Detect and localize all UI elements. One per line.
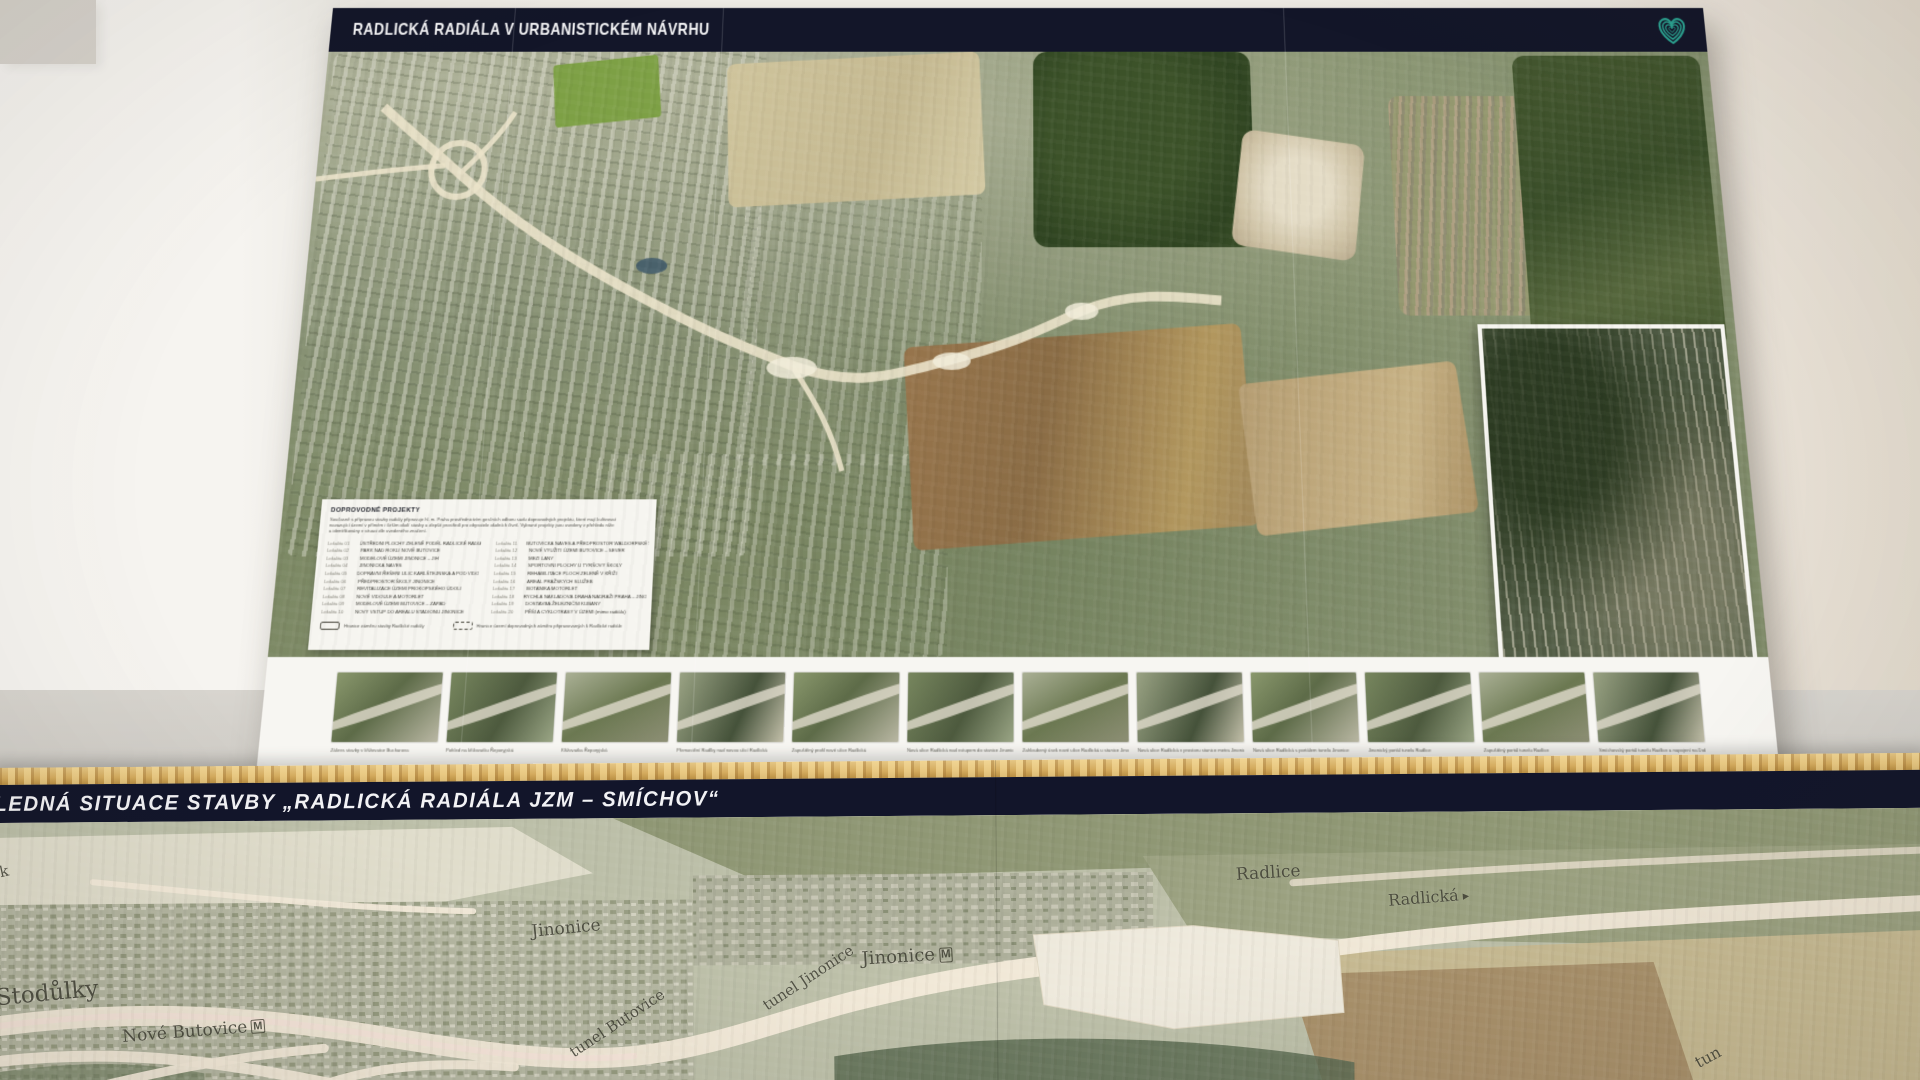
thumbnail-caption: Zapuštěný portál tunelu Radlice bbox=[1484, 747, 1591, 753]
thumbnail: Křižovatka Řeporyjská bbox=[561, 672, 671, 753]
map-label-tun: tun bbox=[1691, 1042, 1724, 1072]
legend-item-label: SPORTOVNÍ PLOCHY U TYRŠOVY ŠKOLY bbox=[528, 563, 622, 569]
legend-item: Lokalita 06PŘEDPROSTOR ŠKOLY JINONICE bbox=[324, 578, 478, 584]
legend-item-code: Lokalita 11 bbox=[496, 540, 521, 546]
photo-of-exhibition-panels: RADLICKÁ RADIÁLA V URBANISTICKÉM NÁVRHU bbox=[0, 0, 1920, 1080]
legend-item: Lokalita 15REHABILITACE PLOCH ZELENĚ V K… bbox=[494, 570, 648, 576]
legend-item-label: PŘEDPROSTOR ŠKOLY JINONICE bbox=[358, 578, 435, 584]
legend-item-code: Lokalita 19 bbox=[491, 601, 520, 607]
legend-item: Lokalita 19DOSTAVBA ŽELEZNIČNÍ KUBÁNY bbox=[491, 601, 646, 607]
top-poster-title: RADLICKÁ RADIÁLA V URBANISTICKÉM NÁVRHU bbox=[352, 20, 710, 40]
legend-item-code: Lokalita 17 bbox=[493, 586, 522, 592]
metro-station-icon: M bbox=[939, 947, 954, 963]
aerial-panorama-route-map: jkStodůlkyNové ButoviceMJinonicetunel Bu… bbox=[0, 808, 1920, 1080]
legend-item-code: Lokalita 03 bbox=[326, 555, 355, 561]
legend-item: Lokalita 05DOPRAVNÍ ŘEŠENÍ ULIC KARLŠTEJ… bbox=[325, 570, 479, 576]
striped-heart-logo-icon bbox=[1654, 15, 1691, 47]
thumbnail-visualization-image bbox=[1479, 672, 1590, 742]
map-label-jinonice: JinoniceM bbox=[861, 943, 953, 969]
thumbnail: Zahloubený úsek nové ulice Radlická u st… bbox=[1022, 672, 1129, 753]
thumbnail-visualization-image bbox=[1251, 672, 1359, 742]
top-poster-title-bar: RADLICKÁ RADIÁLA V URBANISTICKÉM NÁVRHU bbox=[329, 8, 1708, 52]
legend-item-label: BUTOVICKÁ NÁVES A PŘEDPROSTOR WALDORFSKÉ… bbox=[526, 540, 649, 546]
legend-item-code: Lokalita 18 bbox=[492, 593, 518, 599]
map-label-radlick-: Radlická▸ bbox=[1387, 885, 1469, 910]
legend-item-code: Lokalita 12 bbox=[495, 548, 523, 554]
legend-item: Lokalita 13MEZI LÁNY bbox=[495, 555, 649, 561]
top-poster-urban-design-map: RADLICKÁ RADIÁLA V URBANISTICKÉM NÁVRHU bbox=[251, 8, 1785, 827]
legend-item-label: DOSTAVBA ŽELEZNIČNÍ KUBÁNY bbox=[525, 601, 601, 607]
legend-intro-line: a identifikovány v situaci dle uvedeného… bbox=[329, 528, 646, 534]
thumbnail-visualization-image bbox=[1593, 672, 1705, 742]
legend-item: Lokalita 12NOVÉ VYUŽITÍ ÚZEMÍ BUTOVICE –… bbox=[495, 548, 649, 554]
legend-item: Lokalita 02PARK NAD ROKLÍ NOVÉ BUTOVICE bbox=[327, 548, 481, 554]
legend-item-label: JINONICKÁ NÁVES bbox=[359, 563, 402, 569]
aerial-map-urban-design: DOPROVODNÉ PROJEKTY Současně s přípravou… bbox=[268, 52, 1768, 657]
legend-item: Lokalita 20PĚŠÍ A CYKLOTRASY V ÚZEMÍ (mi… bbox=[491, 609, 646, 615]
legend-item-code: Lokalita 15 bbox=[494, 570, 523, 576]
legend-item: Lokalita 08NOVÉ VIDOULE A MOTORLET bbox=[323, 593, 478, 599]
legend-item: Lokalita 14SPORTOVNÍ PLOCHY U TYRŠOVY ŠK… bbox=[494, 563, 648, 569]
legend-item-label: PĚŠÍ A CYKLOTRASY V ÚZEMÍ (mimo radiálu) bbox=[525, 609, 626, 615]
legend-heading: DOPROVODNÉ PROJEKTY bbox=[330, 507, 646, 514]
thumbnail-caption: Zapuštěný profil nové ulice Radlická bbox=[792, 747, 899, 753]
legend-item-code: Lokalita 07 bbox=[323, 586, 352, 592]
thumbnail-caption: Pohled na křižovatku Řeporyjská bbox=[446, 747, 553, 753]
thumbnail: Nová ulice Radlická v prostoru stanice m… bbox=[1137, 672, 1245, 753]
thumbnail-caption: Smíchovský portál tunelu Radlice a napoj… bbox=[1599, 747, 1706, 753]
legend-item: Lokalita 01ÚSTŘEDNÍ PLOCHY ZELENĚ PODÉL … bbox=[328, 540, 482, 546]
thumbnail-visualization-image bbox=[562, 672, 672, 742]
map-label-tunel-butovice: tunel Butovice bbox=[566, 985, 668, 1061]
legend-footer-keys: Hranice záměru stavby Radlické radiályHr… bbox=[320, 621, 641, 629]
legend-item: Lokalita 11BUTOVICKÁ NÁVES A PŘEDPROSTOR… bbox=[496, 540, 649, 546]
legend-item-label: ÚSTŘEDNÍ PLOCHY ZELENĚ PODÉL RADLICKÉ RA… bbox=[359, 540, 481, 546]
thumbnail-row: Zákres stavby v křižovatce BucharovaPohl… bbox=[330, 672, 1705, 753]
legend-intro: Současně s přípravou stavby radiály přip… bbox=[329, 516, 647, 534]
legend-column-right: Lokalita 11BUTOVICKÁ NÁVES A PŘEDPROSTOR… bbox=[491, 540, 650, 616]
legend-item: Lokalita 17BOTANIKA MOTORLET bbox=[493, 586, 647, 592]
map-labels-layer: jkStodůlkyNové ButoviceMJinonicetunel Bu… bbox=[0, 808, 1920, 1080]
direction-arrow-icon: ▸ bbox=[1462, 888, 1470, 903]
legend-item-label: REVITALIZACE ÚZEMÍ PROKOPSKÉHO ÚDOLÍ bbox=[357, 586, 461, 592]
legend-item-code: Lokalita 20 bbox=[491, 609, 520, 615]
thumbnail: Jinonický portál tunelu Radlice bbox=[1365, 672, 1475, 753]
map-label-jk: jk bbox=[0, 862, 10, 883]
legend-item-label: REHABILITACE PLOCH ZELENĚ V KŘÍŽI bbox=[527, 570, 617, 576]
legend-key: Hranice území doprovodných záměrů připra… bbox=[452, 621, 622, 629]
thumbnail: Zákres stavby v křižovatce Bucharova bbox=[330, 672, 443, 753]
inset-detail-map bbox=[1477, 324, 1757, 657]
map-label-nov-butovice: Nové ButoviceM bbox=[122, 1016, 266, 1047]
legend-item-label: NOVÝ VSTUP DO AREÁLU STADIONU JINONICE bbox=[355, 609, 464, 615]
legend-item-code: Lokalita 02 bbox=[327, 548, 356, 554]
thumbnail: Nová ulice Radlická s portálem tunelu Ji… bbox=[1251, 672, 1360, 753]
legend-item-label: NOVÉ VIDOULE A MOTORLET bbox=[356, 593, 424, 599]
legend-item: Lokalita 18RYCHLÁ NÁKLADOVÁ DRÁHA NÁDRAŽ… bbox=[492, 593, 647, 599]
legend-item-label: NOVÉ VYUŽITÍ ÚZEMÍ BUTOVICE – SEVER bbox=[529, 548, 625, 554]
legend-item-code: Lokalita 04 bbox=[325, 563, 354, 569]
thumbnail-caption: Přemostění Radlky nad novou ulicí Radlic… bbox=[676, 747, 783, 753]
legend-item: Lokalita 07REVITALIZACE ÚZEMÍ PROKOPSKÉH… bbox=[323, 586, 478, 592]
solid-outline-box bbox=[320, 621, 340, 629]
thumbnail-caption: Nová ulice Radlická s portálem tunelu Ji… bbox=[1253, 747, 1360, 753]
thumbnail-visualization-image bbox=[1022, 672, 1128, 742]
thumbnail-visualization-image bbox=[792, 672, 899, 742]
metro-station-icon: M bbox=[251, 1019, 265, 1034]
legend-item-label: MODELOVÉ ÚZEMÍ JINONICE – JIH bbox=[360, 555, 439, 561]
legend-item-code: Lokalita 14 bbox=[494, 563, 523, 569]
legend-item-code: Lokalita 01 bbox=[328, 540, 355, 546]
legend-item-code: Lokalita 05 bbox=[325, 570, 352, 576]
thumbnail-caption: Zákres stavby v křižovatce Bucharova bbox=[330, 747, 437, 753]
legend-item-code: Lokalita 09 bbox=[322, 601, 351, 607]
legend-item-label: BOTANIKA MOTORLET bbox=[526, 586, 578, 592]
map-label-radlice: Radlice bbox=[1235, 861, 1301, 885]
legend-item-code: Lokalita 10 bbox=[321, 609, 350, 615]
thumbnail-caption: Jinonický portál tunelu Radlice bbox=[1368, 747, 1475, 753]
thumbnail-caption: Nová ulice Radlická nad vstupem do stani… bbox=[907, 747, 1013, 753]
thumbnail: Nová ulice Radlická nad vstupem do stani… bbox=[907, 672, 1014, 753]
thumbnail: Zapuštěný profil nové ulice Radlická bbox=[792, 672, 900, 753]
bottom-poster-title: LEDNÁ SITUACE STAVBY „RADLICKÁ RADIÁLA J… bbox=[0, 787, 720, 817]
legend-item-code: Lokalita 08 bbox=[323, 593, 352, 599]
legend-item-code: Lokalita 16 bbox=[493, 578, 522, 584]
thumbnail-visualization-image bbox=[1365, 672, 1475, 742]
thumbnail-visualization-image bbox=[1137, 672, 1244, 742]
legend-item-code: Lokalita 13 bbox=[495, 555, 523, 561]
bottom-poster-construction-situation: LEDNÁ SITUACE STAVBY „RADLICKÁ RADIÁLA J… bbox=[0, 753, 1920, 1080]
thumbnail-caption: Zahloubený úsek nové ulice Radlická u st… bbox=[1022, 747, 1128, 753]
thumbnail-visualization-image bbox=[907, 672, 1013, 742]
thumbnail: Smíchovský portál tunelu Radlice a napoj… bbox=[1593, 672, 1706, 753]
legend-item-label: MEZI LÁNY bbox=[528, 555, 553, 561]
legend-key-label: Hranice záměru stavby Radlické radiály bbox=[344, 622, 425, 628]
thumbnail-caption: Nová ulice Radlická v prostoru stanice m… bbox=[1138, 747, 1245, 753]
legend-item-label: DOPRAVNÍ ŘEŠENÍ ULIC KARLŠTEJNSKÁ A POD … bbox=[357, 570, 479, 576]
legend-box: DOPROVODNÉ PROJEKTY Současně s přípravou… bbox=[308, 499, 657, 650]
thumbnail-caption: Křižovatka Řeporyjská bbox=[561, 747, 668, 753]
railway-texture bbox=[1482, 329, 1753, 657]
map-label-stod-lky: Stodůlky bbox=[0, 976, 99, 1012]
legend-item: Lokalita 04JINONICKÁ NÁVES bbox=[325, 563, 479, 569]
legend-column-left: Lokalita 01ÚSTŘEDNÍ PLOCHY ZELENĚ PODÉL … bbox=[321, 540, 481, 616]
thumbnail-visualization-image bbox=[331, 672, 443, 742]
wall-corner-shadow bbox=[0, 0, 96, 64]
legend-item-code: Lokalita 06 bbox=[324, 578, 353, 584]
legend-item-label: PARK NAD ROKLÍ NOVÉ BUTOVICE bbox=[360, 548, 440, 554]
legend-item: Lokalita 09MODELOVÉ ÚZEMÍ BUTOVICE – ZÁP… bbox=[322, 601, 477, 607]
legend-key-label: Hranice území doprovodných záměrů připra… bbox=[476, 622, 622, 628]
map-label-tunel-jinonice: tunel Jinonice bbox=[759, 941, 857, 1014]
legend-item: Lokalita 10NOVÝ VSTUP DO AREÁLU STADIONU… bbox=[321, 609, 476, 615]
thumbnail: Zapuštěný portál tunelu Radlice bbox=[1479, 672, 1590, 753]
legend-key: Hranice záměru stavby Radlické radiály bbox=[320, 621, 425, 629]
legend-item-label: AREÁL PRAŽSKÝCH SLUŽEB bbox=[527, 578, 593, 584]
legend-item: Lokalita 03MODELOVÉ ÚZEMÍ JINONICE – JIH bbox=[326, 555, 480, 561]
legend-item-label: RYCHLÁ NÁKLADOVÁ DRÁHA NÁDRAŽÍ PRAHA – J… bbox=[523, 593, 646, 599]
legend-item: Lokalita 16AREÁL PRAŽSKÝCH SLUŽEB bbox=[493, 578, 647, 584]
map-label-jinonice: Jinonice bbox=[530, 915, 601, 942]
legend-item-label: MODELOVÉ ÚZEMÍ BUTOVICE – ZÁPAD bbox=[356, 601, 446, 607]
